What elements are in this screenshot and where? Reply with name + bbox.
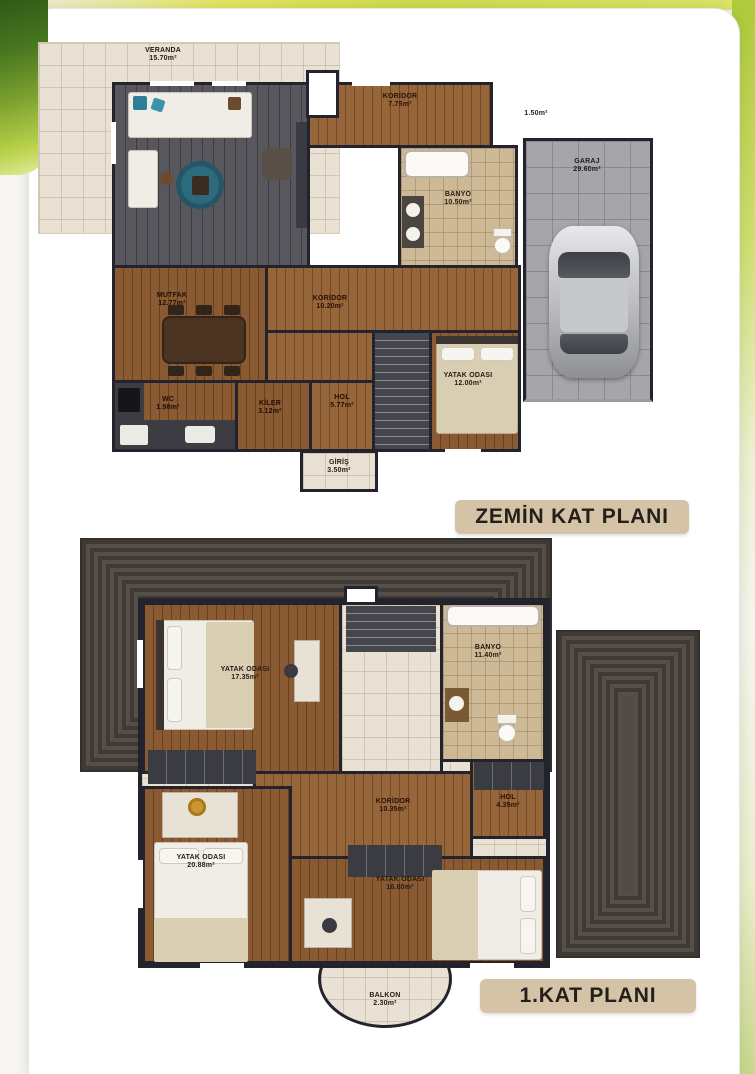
chimney	[306, 70, 339, 118]
room-label: YATAK ODASI 16.80m²	[350, 876, 450, 893]
window	[200, 963, 244, 969]
first-floor-title: 1.KAT PLANI	[520, 984, 657, 1008]
room-label: HOL 4.35m²	[478, 794, 538, 811]
staircase-ground	[372, 330, 432, 452]
room-label: GARAJ 29.60m²	[537, 158, 637, 175]
room-label: YATAK ODASI 12.00m²	[418, 372, 518, 389]
roof-right	[556, 630, 700, 958]
wardrobe	[348, 845, 442, 877]
bathtub	[404, 150, 470, 178]
bathtub	[446, 605, 540, 627]
bed-pillow	[167, 626, 182, 670]
dining-table	[162, 316, 246, 364]
mirror	[188, 798, 206, 816]
appliance	[120, 425, 148, 445]
room-label: KORİDOR 10.35m²	[343, 798, 443, 815]
room-label: HOL 5.77m²	[312, 394, 372, 411]
room-label: KORİDOR 7.75m²	[350, 93, 450, 110]
bed-pillow	[520, 918, 536, 954]
room-label: YATAK ODASI 17.35m²	[190, 666, 300, 683]
car-rear-window	[560, 334, 628, 354]
window	[137, 860, 143, 908]
toilet	[494, 237, 511, 254]
desk	[128, 150, 158, 208]
window	[445, 449, 481, 454]
window	[470, 963, 514, 969]
sofa-pillow	[133, 96, 147, 110]
room-label: BALKON 2.30m²	[335, 992, 435, 1009]
kitchen-sink	[185, 426, 215, 443]
window	[150, 81, 194, 86]
room-label: GİRİŞ 3.50m²	[308, 459, 370, 476]
toilet	[498, 724, 516, 742]
room-label: BANYO 10.50m²	[408, 191, 508, 208]
room-label: WC 1.98m²	[138, 396, 198, 413]
room-label: KİLER 3.12m²	[240, 400, 300, 417]
ground-floor-title: ZEMİN KAT PLANI	[475, 505, 669, 529]
room-label: YATAK ODASI 20.88m²	[151, 854, 251, 871]
wardrobe	[474, 762, 544, 790]
sofa-pillow	[228, 97, 241, 110]
coffee-table	[192, 176, 209, 195]
desk-chair	[322, 918, 337, 933]
car-roof	[560, 280, 628, 332]
window	[352, 81, 390, 86]
bed-headboard	[156, 620, 164, 730]
armchair	[262, 148, 292, 180]
desk-chair	[160, 172, 173, 185]
window	[111, 122, 116, 164]
chair	[224, 366, 240, 376]
chair	[168, 366, 184, 376]
bed-pillow	[480, 347, 514, 361]
bed-headboard	[436, 336, 518, 344]
sink	[449, 696, 464, 711]
window	[137, 640, 143, 688]
area-label: 1.50m²	[506, 110, 566, 118]
tv-unit	[296, 122, 307, 228]
car-windshield	[558, 252, 630, 278]
room-hall-ground	[309, 380, 375, 452]
room-label: VERANDA 15.70m²	[113, 47, 213, 64]
bed-pillow	[441, 347, 475, 361]
staircase-first	[346, 606, 436, 652]
first-floor-title-badge: 1.KAT PLANI	[480, 979, 696, 1013]
toilet-tank	[493, 228, 512, 237]
room-label: BANYO 11.40m²	[438, 644, 538, 661]
bed-blanket	[154, 918, 248, 962]
bed-pillow	[520, 876, 536, 912]
chair	[196, 366, 212, 376]
bed-pillow	[167, 678, 182, 722]
room-label: MUTFAK 12.77m²	[122, 292, 222, 309]
sink	[406, 227, 420, 241]
brochure-page: VERANDA 15.70m² KORİDOR 7.75m² 1.50m² BA…	[0, 0, 755, 1074]
toilet-tank	[497, 714, 517, 724]
room-label: KORİDOR 10.20m²	[280, 295, 380, 312]
ground-floor-title-badge: ZEMİN KAT PLANI	[455, 500, 689, 534]
cooktop	[118, 388, 140, 412]
wardrobe	[148, 750, 256, 784]
window	[212, 81, 246, 86]
chair	[224, 305, 240, 315]
